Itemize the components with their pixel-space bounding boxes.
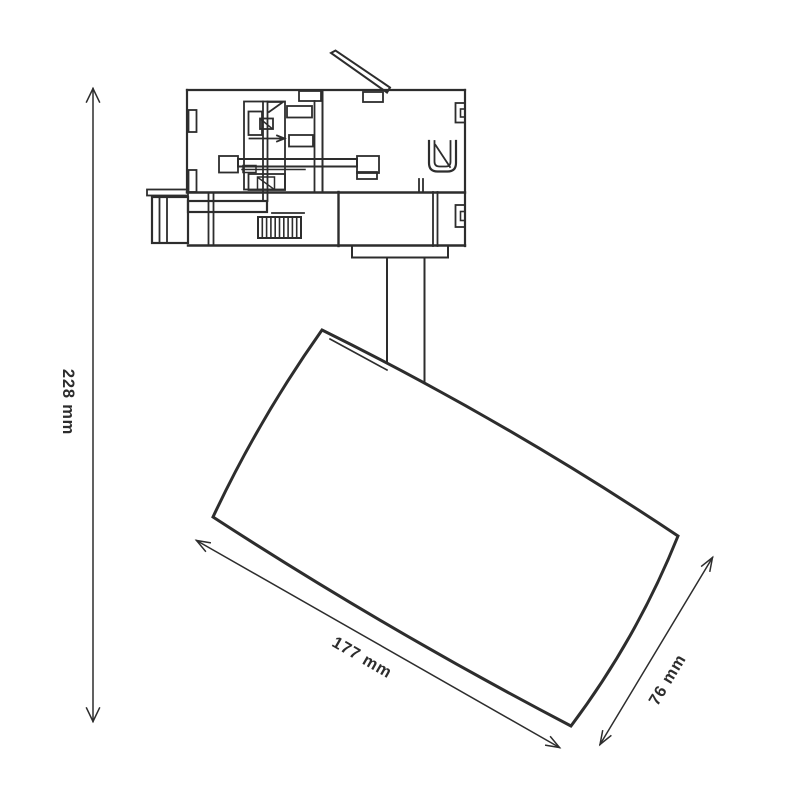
adapter-release-lever [331, 51, 390, 93]
height-dimension [87, 89, 100, 722]
adapter-ribbed-grip [258, 213, 304, 238]
spotlight-head [213, 330, 678, 726]
track-adapter [147, 51, 465, 258]
height-dimension-label: 228 mm [59, 369, 77, 435]
length-dimension-label: 177 mm [329, 633, 395, 682]
adapter-contact-mechanism [219, 102, 379, 202]
dimension-drawing: 228 mm 177 mm 76 mm [0, 0, 800, 800]
adapter-side-knob [152, 197, 188, 243]
technical-drawing-svg: 228 mm 177 mm 76 mm [0, 0, 800, 800]
diameter-dimension-label: 76 mm [646, 651, 690, 709]
adapter-ground-clip [429, 141, 456, 172]
